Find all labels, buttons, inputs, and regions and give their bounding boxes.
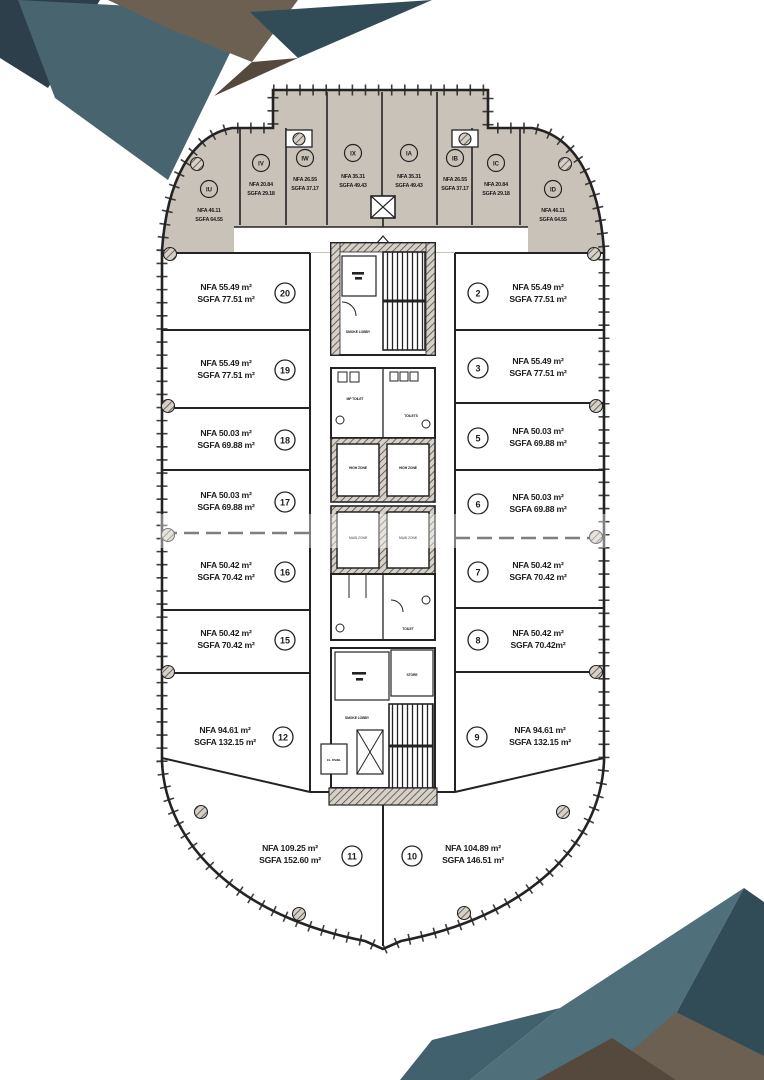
unit-nfa: NFA 50.42 m² <box>200 560 252 570</box>
unit-sgfa: SGFA 69.88 m² <box>509 438 567 448</box>
unit-nfa: NFA 50.03 m² <box>200 428 252 438</box>
core-label: HIGH ZONE <box>399 466 418 470</box>
unit-number: IX <box>350 152 356 158</box>
unit-number: 20 <box>280 289 290 299</box>
lift-shaft <box>387 444 429 496</box>
unit-nfa: NFA 50.42 m² <box>200 628 252 638</box>
unit-sgfa: SGFA 77.51 m² <box>197 370 255 380</box>
unit-sgfa: SGFA 29.18 <box>247 191 275 197</box>
unit-nfa: NFA 26.55 <box>443 177 467 183</box>
core-label: HIGH ZONE <box>349 466 368 470</box>
unit-number: 10 <box>407 852 417 862</box>
unit-number: 15 <box>280 636 290 646</box>
unit-number: 9 <box>474 733 479 743</box>
lift-shaft <box>337 444 379 496</box>
unit-number: 12 <box>278 733 288 743</box>
unit-nfa: NFA 20.84 <box>484 182 508 188</box>
unit-number: 11 <box>347 852 357 862</box>
unit-number: 5 <box>475 434 480 444</box>
unit-nfa: NFA 50.03 m² <box>512 426 564 436</box>
unit-number: IB <box>452 157 459 163</box>
unit-number: 2 <box>475 289 480 299</box>
unit-number: IA <box>406 152 413 158</box>
unit-nfa: NFA 20.84 <box>249 182 273 188</box>
unit-number: 18 <box>280 436 290 446</box>
unit-number: 16 <box>280 568 290 578</box>
unit-sgfa: SGFA 49.43 <box>395 183 423 189</box>
unit-sgfa: SGFA 70.42 m² <box>197 640 255 650</box>
unit-sgfa: SGFA 70.42 m² <box>509 572 567 582</box>
unit-sgfa: SGFA 70.42 m² <box>197 572 255 582</box>
unit-number: 3 <box>475 364 480 374</box>
unit-sgfa: SGFA 29.18 <box>482 191 510 197</box>
unit-nfa: NFA 50.03 m² <box>512 492 564 502</box>
core-label: MP TOILET <box>346 397 364 401</box>
unit-nfa: NFA 104.89 m² <box>445 843 501 853</box>
unit-nfa: NFA 50.03 m² <box>200 490 252 500</box>
unit-sgfa: SGFA 37.17 <box>291 186 319 192</box>
unit-sgfa: SGFA 70.42m² <box>510 640 565 650</box>
unit-sgfa: SGFA 49.43 <box>339 183 367 189</box>
unit-sgfa: SGFA 132.15 m² <box>194 737 256 747</box>
unit-sgfa: SGFA 64.55 <box>195 217 223 223</box>
unit-sgfa: SGFA 37.17 <box>441 186 469 192</box>
unit-number: 8 <box>475 636 480 646</box>
unit-number: 7 <box>475 568 480 578</box>
unit-nfa: NFA 94.61 m² <box>199 725 251 735</box>
unit-sgfa: SGFA 64.55 <box>539 217 567 223</box>
unit-nfa: NFA 50.42 m² <box>512 560 564 570</box>
unit-sgfa: SGFA 69.88 m² <box>197 502 255 512</box>
floor-plan-page: SMOKE LOBBY MP TOILET TOILETS HIGH ZONE … <box>0 0 764 1080</box>
unit-nfa: NFA 55.49 m² <box>512 282 564 292</box>
unit-sgfa: SGFA 69.88 m² <box>509 504 567 514</box>
lift-shaft <box>335 652 389 700</box>
unit-number: ID <box>550 188 557 194</box>
unit-number: 6 <box>475 500 480 510</box>
unit-sgfa: SGFA 146.51 m² <box>442 855 504 865</box>
core-label: TOILETS <box>404 414 418 418</box>
unit-nfa: NFA 55.49 m² <box>200 358 252 368</box>
core-stair-block-bottom: STORE SMOKE LOBBY EL. PANEL <box>321 648 437 805</box>
unit-nfa: NFA 55.49 m² <box>512 356 564 366</box>
core-label: SMOKE LOBBY <box>345 716 370 720</box>
unit-nfa: NFA 26.55 <box>293 177 317 183</box>
unit-nfa: NFA 46.11 <box>197 208 221 214</box>
unit-sgfa: SGFA 77.51 m² <box>509 294 567 304</box>
core-toilet-block-upper: MP TOILET TOILETS HIGH ZONE HIGH ZONE <box>331 368 435 502</box>
unit-nfa: NFA 109.25 m² <box>262 843 318 853</box>
unit-number: IV <box>258 162 264 168</box>
unit-sgfa: SGFA 77.51 m² <box>197 294 255 304</box>
unit-nfa: NFA 46.11 <box>541 208 565 214</box>
unit-number: IW <box>301 157 309 163</box>
unit-sgfa: SGFA 132.15 m² <box>509 737 571 747</box>
core-label: EL. PANEL <box>327 758 341 762</box>
watermark-band <box>160 514 606 548</box>
unit-number: IC <box>493 162 500 168</box>
lift-shaft <box>342 256 376 296</box>
unit-nfa: NFA 94.61 m² <box>514 725 566 735</box>
unit-nfa: NFA 55.49 m² <box>200 282 252 292</box>
unit-sgfa: SGFA 69.88 m² <box>197 440 255 450</box>
unit-sgfa: SGFA 152.60 m² <box>259 855 321 865</box>
unit-number: 19 <box>280 366 290 376</box>
unit-sgfa: SGFA 77.51 m² <box>509 368 567 378</box>
unit-nfa: NFA 35.31 <box>341 174 365 180</box>
core-stair-block-top: SMOKE LOBBY <box>331 236 435 355</box>
unit-nfa: NFA 35.31 <box>397 174 421 180</box>
core-label: SMOKE LOBBY <box>346 330 371 334</box>
floor-plan-canvas: SMOKE LOBBY MP TOILET TOILETS HIGH ZONE … <box>0 0 764 1080</box>
unit-nfa: NFA 50.42 m² <box>512 628 564 638</box>
core-label: STORE <box>406 673 418 677</box>
core-label: TOILET <box>402 627 414 631</box>
unit-number: 17 <box>280 498 290 508</box>
unit-number: IU <box>206 188 212 194</box>
